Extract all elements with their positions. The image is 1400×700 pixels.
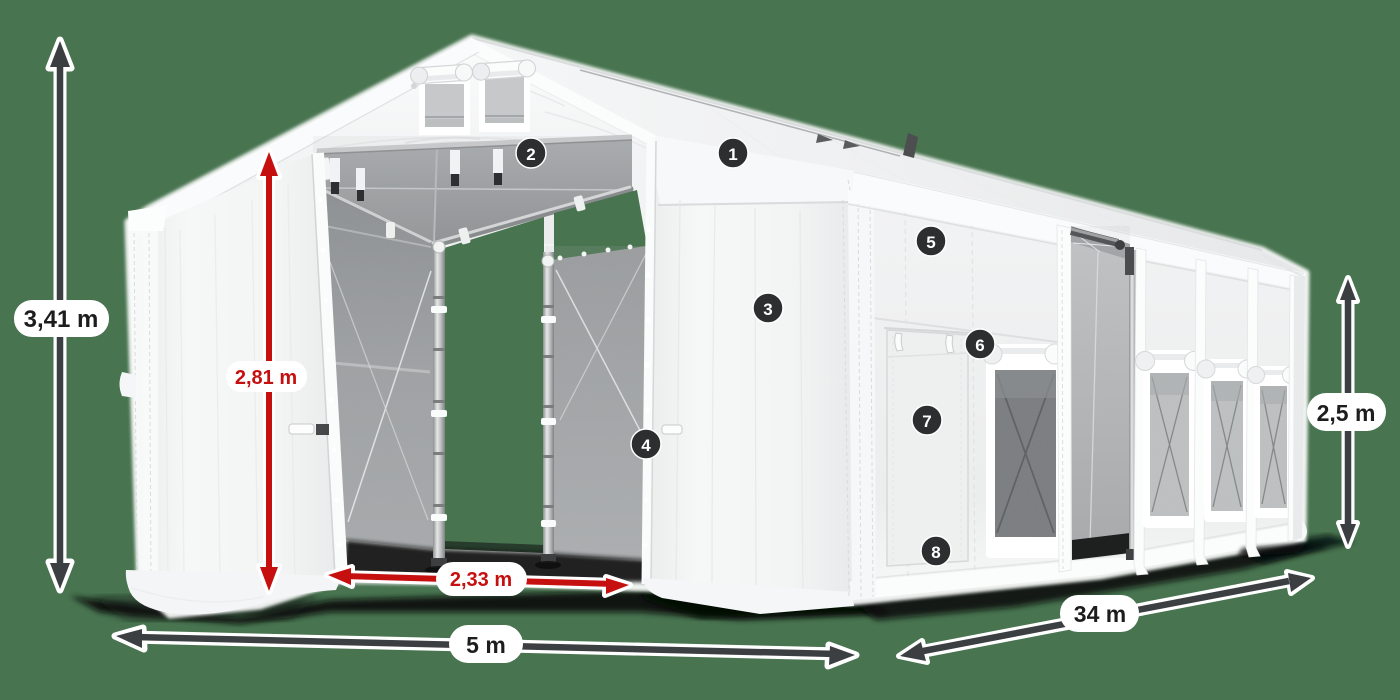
- svg-text:2,33 m: 2,33 m: [450, 569, 512, 591]
- svg-text:4: 4: [641, 436, 651, 455]
- svg-text:5: 5: [926, 233, 935, 252]
- svg-text:2,5 m: 2,5 m: [1317, 400, 1376, 426]
- svg-text:6: 6: [975, 336, 984, 355]
- svg-text:7: 7: [922, 412, 931, 431]
- svg-text:2,81 m: 2,81 m: [235, 367, 297, 389]
- svg-text:8: 8: [931, 543, 940, 562]
- svg-text:3: 3: [763, 300, 772, 319]
- svg-text:2: 2: [526, 145, 535, 164]
- svg-text:1: 1: [728, 145, 737, 164]
- svg-text:34 m: 34 m: [1074, 601, 1126, 627]
- svg-text:3,41 m: 3,41 m: [24, 306, 99, 333]
- svg-text:5 m: 5 m: [466, 632, 506, 658]
